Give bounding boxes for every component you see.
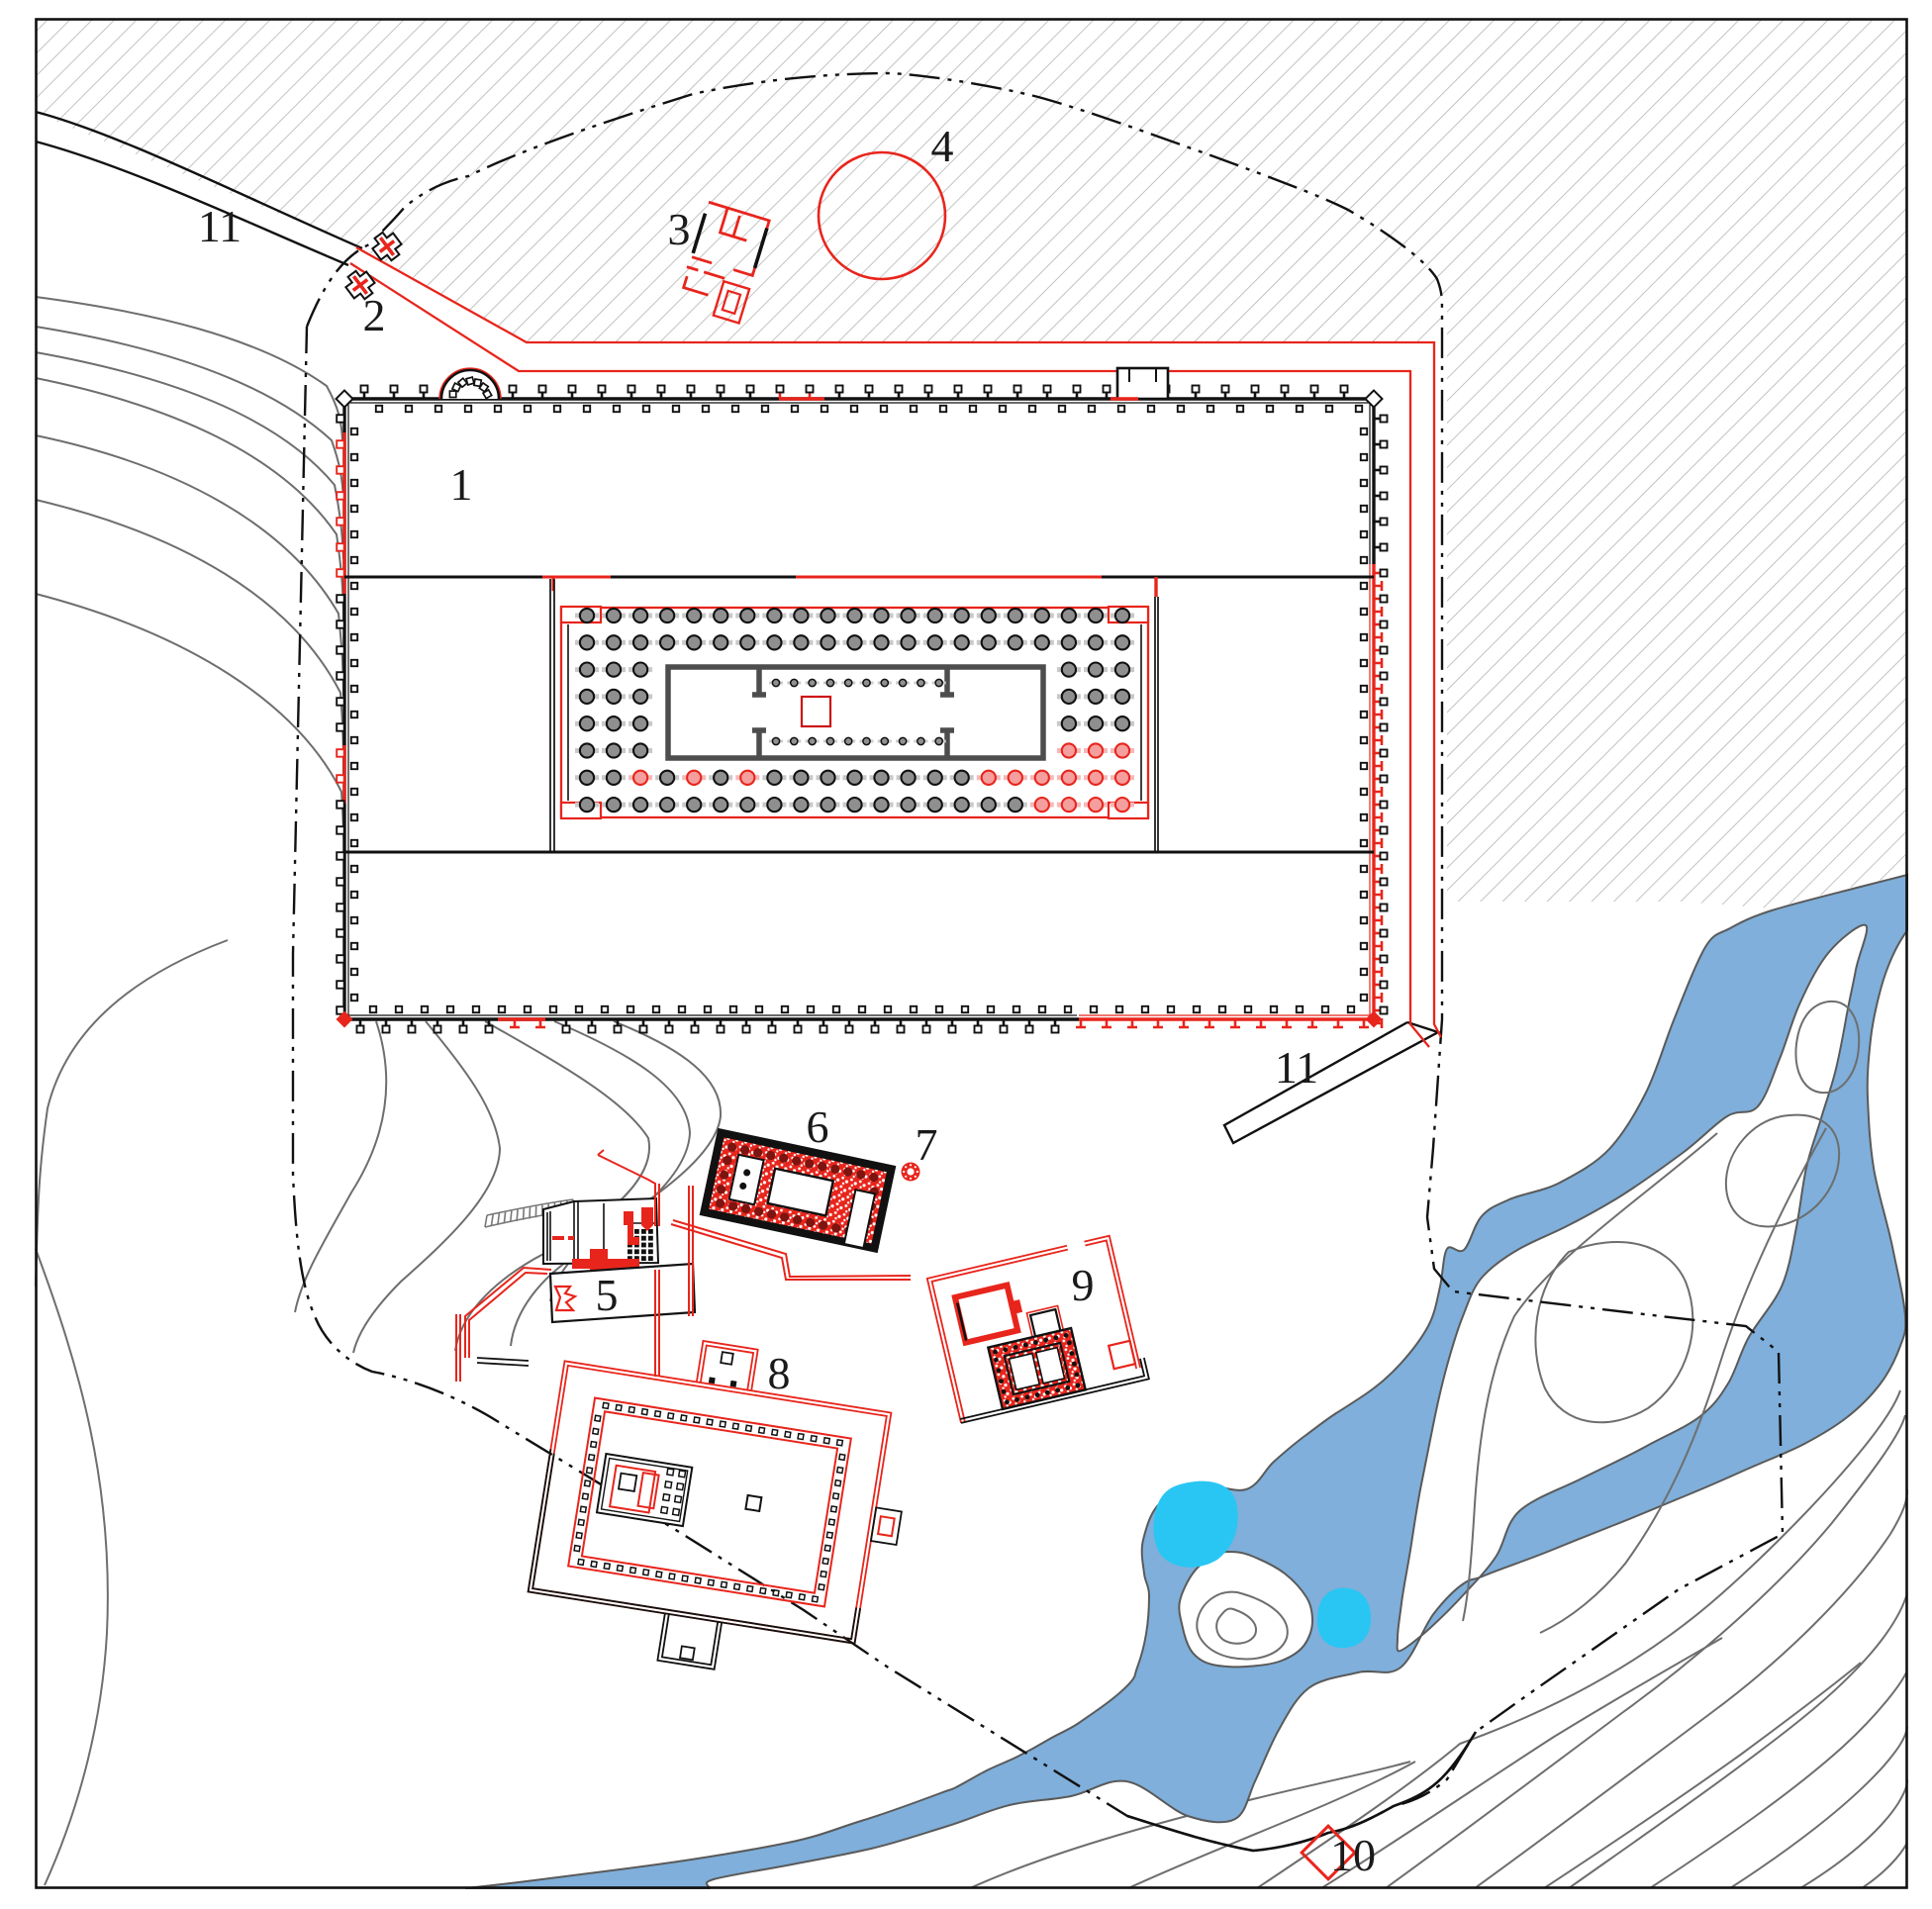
svg-text:5: 5 bbox=[596, 1270, 619, 1320]
svg-text:4: 4 bbox=[931, 121, 954, 171]
svg-text:2: 2 bbox=[363, 290, 386, 340]
svg-text:3: 3 bbox=[668, 204, 691, 254]
svg-text:9: 9 bbox=[1072, 1260, 1095, 1310]
svg-text:11: 11 bbox=[198, 201, 241, 251]
svg-text:8: 8 bbox=[768, 1348, 791, 1398]
svg-text:1: 1 bbox=[450, 459, 473, 510]
svg-text:6: 6 bbox=[807, 1101, 829, 1152]
svg-text:11: 11 bbox=[1275, 1042, 1318, 1093]
svg-text:7: 7 bbox=[916, 1119, 938, 1170]
svg-text:10: 10 bbox=[1330, 1830, 1376, 1880]
